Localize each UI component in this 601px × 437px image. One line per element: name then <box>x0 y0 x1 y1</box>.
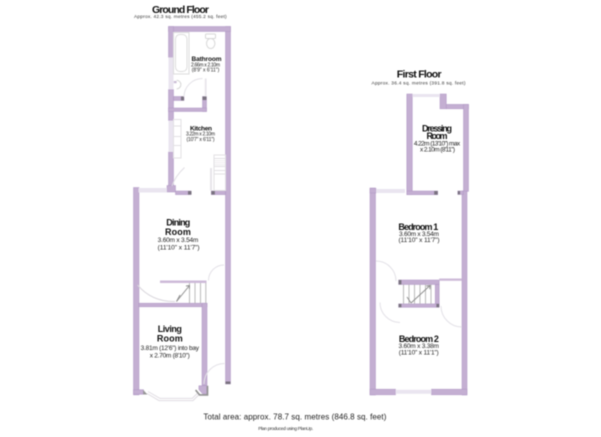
svg-text:Approx. 42.3 sq. metres (455.2: Approx. 42.3 sq. metres (455.2 sq. feet) <box>134 14 227 20</box>
svg-text:(10'7" x 6'11"): (10'7" x 6'11") <box>187 137 215 143</box>
svg-text:(8'9" x 6'11"): (8'9" x 6'11") <box>192 67 220 73</box>
svg-text:Room: Room <box>157 334 183 344</box>
svg-text:(11'10" x 11'7"): (11'10" x 11'7") <box>158 245 200 252</box>
svg-text:Approx. 36.4 sq. metres (391.8: Approx. 36.4 sq. metres (391.8 sq. feet) <box>372 81 466 87</box>
svg-text:Living: Living <box>158 324 182 334</box>
svg-text:x 2.10m (8'11"): x 2.10m (8'11") <box>420 147 455 154</box>
svg-text:3.60m x 3.54m: 3.60m x 3.54m <box>158 237 199 244</box>
svg-text:Total area: approx. 78.7 sq. m: Total area: approx. 78.7 sq. metres (846… <box>203 413 386 422</box>
svg-text:(11'10" x 11'7"): (11'10" x 11'7") <box>399 237 440 244</box>
svg-text:First Floor: First Floor <box>397 69 442 81</box>
svg-text:Room: Room <box>165 227 191 237</box>
svg-text:Dining: Dining <box>166 217 190 227</box>
svg-text:Room: Room <box>427 131 448 141</box>
svg-text:x 2.70m (8'10"): x 2.70m (8'10") <box>150 353 190 360</box>
svg-text:Plan produced using PlanUp.: Plan produced using PlanUp. <box>258 426 313 432</box>
svg-text:(11'10" x 11'1"): (11'10" x 11'1") <box>399 349 439 356</box>
svg-text:3.81m (12'6") into bay: 3.81m (12'6") into bay <box>141 345 200 352</box>
